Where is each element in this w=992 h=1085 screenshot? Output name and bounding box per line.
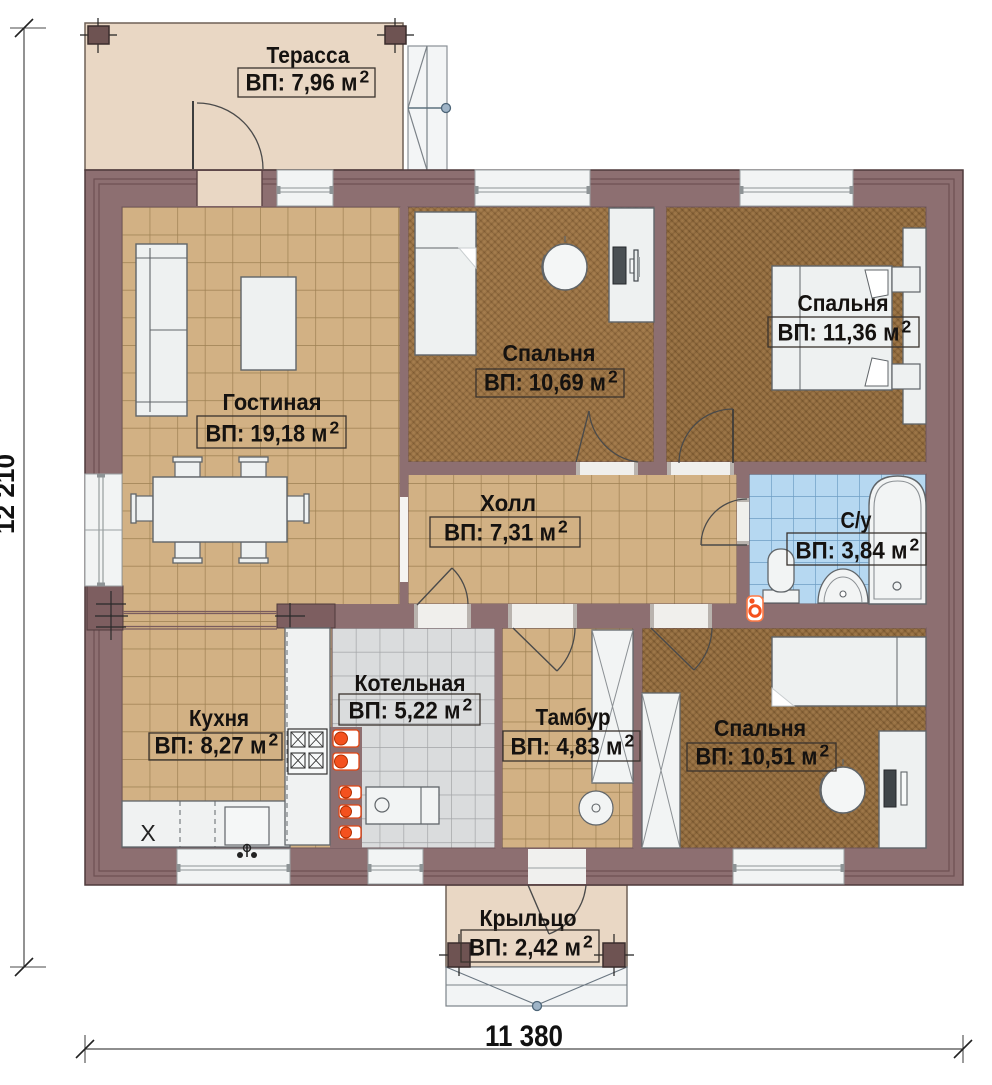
svg-text:Крыльцо: Крыльцо xyxy=(480,905,577,931)
svg-text:С/у: С/у xyxy=(841,507,872,533)
svg-text:ВП: 4,83 м: ВП: 4,83 м xyxy=(511,734,623,761)
svg-text:ВП: 5,22 м: ВП: 5,22 м xyxy=(349,698,461,725)
svg-text:Спальня: Спальня xyxy=(714,715,806,741)
svg-text:2: 2 xyxy=(463,695,473,715)
svg-text:ВП: 7,96 м: ВП: 7,96 м xyxy=(246,70,358,97)
svg-text:Терасса: Терасса xyxy=(267,42,350,68)
svg-text:ВП: 3,84 м: ВП: 3,84 м xyxy=(796,538,908,565)
svg-text:2: 2 xyxy=(360,67,370,87)
svg-text:Спальня: Спальня xyxy=(798,290,889,316)
svg-text:X: X xyxy=(140,820,155,846)
svg-text:Спальня: Спальня xyxy=(503,340,596,366)
svg-text:Гостиная: Гостиная xyxy=(223,389,322,415)
svg-text:12 210: 12 210 xyxy=(0,454,20,534)
svg-text:2: 2 xyxy=(910,535,920,555)
svg-text:2: 2 xyxy=(902,317,912,337)
svg-text:ВП: 8,27 м: ВП: 8,27 м xyxy=(155,733,267,760)
svg-text:Холл: Холл xyxy=(480,490,536,516)
svg-text:2: 2 xyxy=(330,418,340,438)
svg-text:2: 2 xyxy=(608,367,618,387)
svg-text:ВП: 10,51 м: ВП: 10,51 м xyxy=(696,744,818,771)
svg-text:2: 2 xyxy=(583,932,593,952)
svg-text:11 380: 11 380 xyxy=(485,1020,563,1053)
svg-text:ВП: 11,36 м: ВП: 11,36 м xyxy=(778,320,900,347)
svg-text:2: 2 xyxy=(558,517,568,537)
svg-text:ВП: 19,18 м: ВП: 19,18 м xyxy=(206,421,328,448)
svg-text:2: 2 xyxy=(625,731,635,751)
svg-text:Тамбур: Тамбур xyxy=(536,704,611,730)
svg-text:2: 2 xyxy=(269,730,279,750)
svg-text:ВП: 7,31 м: ВП: 7,31 м xyxy=(444,520,556,547)
svg-text:2: 2 xyxy=(820,741,830,761)
svg-text:ВП: 10,69 м: ВП: 10,69 м xyxy=(484,370,606,397)
svg-text:ВП: 2,42 м: ВП: 2,42 м xyxy=(469,935,581,962)
svg-text:Кухня: Кухня xyxy=(189,705,249,731)
svg-text:Котельная: Котельная xyxy=(355,670,466,696)
